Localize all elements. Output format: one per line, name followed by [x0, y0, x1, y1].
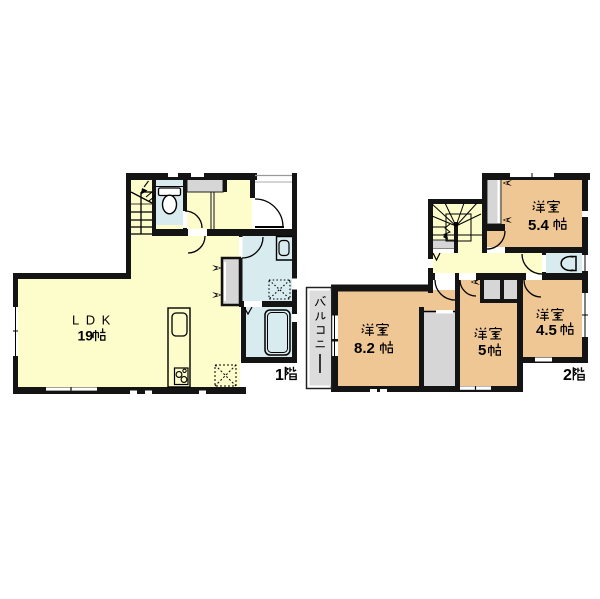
svg-text:LDK: LDK	[72, 313, 117, 328]
svg-text:8.2: 8.2	[354, 340, 375, 357]
svg-text:1: 1	[275, 367, 284, 384]
svg-text:2: 2	[563, 367, 572, 384]
svg-text:5: 5	[478, 342, 486, 359]
svg-text:4.5: 4.5	[536, 322, 557, 339]
svg-text:5.4: 5.4	[528, 217, 550, 234]
svg-text:19: 19	[78, 328, 94, 344]
